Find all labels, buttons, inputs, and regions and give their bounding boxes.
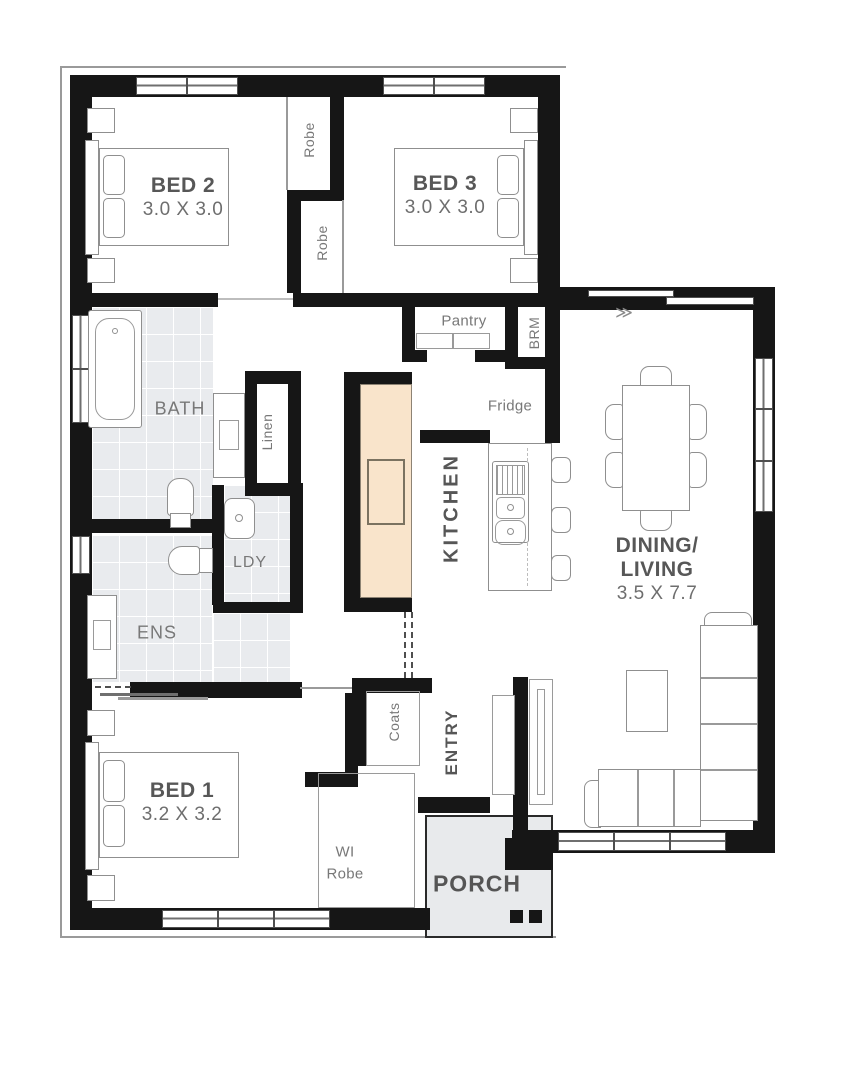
bath-toilet-bowl xyxy=(167,478,194,516)
island-stool-1 xyxy=(551,457,571,483)
robe-top-opening-line xyxy=(286,97,288,190)
bath-basin xyxy=(219,420,239,450)
wall-linen-right xyxy=(288,371,301,485)
bed3-label: BED 3 xyxy=(413,172,477,196)
entry-door-leaf xyxy=(492,695,515,795)
bed1-label: BED 1 xyxy=(150,779,214,803)
kitchen-cooktop xyxy=(367,459,405,525)
sofa-seat xyxy=(598,769,701,827)
wall-brm-left xyxy=(505,293,518,357)
window-bed1-mullion-1 xyxy=(217,910,219,928)
porch-post-1 xyxy=(510,910,523,923)
dining-chair-bottom xyxy=(640,509,672,531)
wall-shower-top xyxy=(213,602,293,613)
dining-chair-left-2 xyxy=(605,452,623,488)
coffee-table xyxy=(626,670,668,732)
ens-slider-panel-1 xyxy=(100,693,178,696)
kitchen-label: KITCHEN xyxy=(441,453,464,563)
window-bed3-mullion xyxy=(433,77,435,95)
window-ens xyxy=(72,536,90,574)
island-stool-3 xyxy=(551,555,571,581)
wall-entry-bottom xyxy=(418,797,490,813)
wall-bath-ens xyxy=(92,519,213,533)
bed2-side-table-top xyxy=(87,108,115,133)
dining-table xyxy=(622,385,690,511)
wall-fridge-right xyxy=(545,307,560,443)
wall-kitchen-stub xyxy=(420,430,490,443)
kitchen-sink-bowl-1-drain xyxy=(507,504,514,511)
window-bed1 xyxy=(162,910,330,928)
brm-label: BRM xyxy=(526,317,542,350)
bed3-side-table-top xyxy=(510,108,538,133)
coats-label: Coats xyxy=(386,702,402,741)
wall-bath-top-east xyxy=(293,293,358,307)
bed2-pillow-2 xyxy=(103,198,125,238)
ens-slider-dash xyxy=(95,686,131,688)
bathtub-drain xyxy=(112,328,118,334)
bed1-side-table-top xyxy=(87,710,115,736)
bath-toilet-base xyxy=(170,513,191,528)
bed1-pillow-2 xyxy=(103,805,125,847)
bed2-side-table-bottom xyxy=(87,258,115,283)
bed1-dims: 3.2 X 3.2 xyxy=(142,804,223,826)
bath-label: BATH xyxy=(155,399,206,420)
wall-bed2-bottom xyxy=(70,293,218,307)
floor-plan: ≫ xyxy=(0,0,855,1073)
wall-ldy-left xyxy=(212,485,224,605)
sofa-seat-cushion-line-1 xyxy=(637,770,639,826)
bed3-pillow-1 xyxy=(497,155,519,195)
bed2-pillow-1 xyxy=(103,155,125,195)
window-bed2-mullion xyxy=(186,77,188,95)
window-dining-right-mullion-2 xyxy=(755,460,773,462)
dining-label-line1: DINING/ xyxy=(616,534,699,558)
wi-robe-outline xyxy=(318,773,415,908)
wall-robe-left xyxy=(287,197,301,293)
sofa-chaise-cushion-line-2 xyxy=(701,723,757,725)
porch-post-2 xyxy=(529,910,542,923)
fridge-label: Fridge xyxy=(488,398,532,415)
hall-bed1-header-line xyxy=(300,687,352,689)
slide-direction-arrow-icon: ≫ xyxy=(615,303,633,323)
ens-basin xyxy=(93,620,111,650)
entry-label: ENTRY xyxy=(442,709,462,776)
dining-dims: 3.5 X 7.7 xyxy=(617,583,698,605)
dining-label-line2: LIVING xyxy=(620,558,693,582)
window-dining-right xyxy=(755,358,773,512)
wall-pantry-bottom-b xyxy=(475,350,505,362)
bed1-side-table-bottom xyxy=(87,875,115,901)
ldy-label: LDY xyxy=(233,554,267,572)
ens-toilet-tank xyxy=(199,548,213,573)
sliding-door-panel-2 xyxy=(666,297,754,305)
dining-chair-right-2 xyxy=(689,452,707,488)
pantry-shelf-divider xyxy=(452,333,454,349)
bed3-dims: 3.0 X 3.0 xyxy=(405,197,486,219)
bed3-headboard xyxy=(524,140,538,255)
sofa-chaise-cushion-line-1 xyxy=(701,677,757,679)
wall-bench-cap-top xyxy=(344,372,412,384)
bed2-dims: 3.0 X 3.0 xyxy=(143,199,224,221)
eaves-line-top xyxy=(60,66,566,68)
window-dining-right-mullion-1 xyxy=(755,408,773,410)
eaves-line-left xyxy=(60,66,62,938)
wall-linen-left xyxy=(245,371,257,496)
wall-bed1-right xyxy=(345,693,358,781)
kitchen-entry-dash-1 xyxy=(404,612,406,678)
wi-robe-label-line1: WI xyxy=(336,844,355,861)
kitchen-entry-dash-2 xyxy=(411,612,413,678)
window-living-mullion-2 xyxy=(669,832,671,851)
linen-label: Linen xyxy=(259,414,275,451)
bed3-pillow-2 xyxy=(497,198,519,238)
island-stool-2 xyxy=(551,507,571,533)
ens-label: ENS xyxy=(137,623,177,644)
shower-floor xyxy=(213,613,290,682)
window-living xyxy=(558,832,726,851)
wall-ldy-right xyxy=(290,483,303,613)
kitchen-sink-drainer xyxy=(496,465,525,495)
window-bed1-mullion-2 xyxy=(273,910,275,928)
robe-bottom-opening-line xyxy=(342,200,344,293)
wall-porch-corner xyxy=(505,838,553,870)
kitchen-sink-bowl-2-drain xyxy=(507,528,514,535)
wall-bed3-right xyxy=(538,75,560,307)
ldy-sink-drain xyxy=(235,514,243,522)
wall-kitchen-left xyxy=(344,384,360,598)
dining-chair-right-1 xyxy=(689,404,707,440)
sofa-chaise-cushion-line-3 xyxy=(701,769,757,771)
wi-robe-label-line2: Robe xyxy=(326,866,363,883)
ens-toilet-bowl xyxy=(168,546,200,575)
wall-pantry-bottom-a xyxy=(402,350,427,362)
robe-top-label: Robe xyxy=(301,122,317,157)
bed2-label: BED 2 xyxy=(151,174,215,198)
wall-bed3-bottom xyxy=(358,293,560,307)
sofa-seat-cushion-line-2 xyxy=(673,770,675,826)
porch-label: PORCH xyxy=(433,871,521,898)
bed1-headboard xyxy=(85,742,99,870)
pantry-label: Pantry xyxy=(441,313,486,330)
wall-bench-cap-bottom xyxy=(344,598,412,612)
wall-entry-dining xyxy=(513,677,528,835)
bed3-side-table-bottom xyxy=(510,258,538,283)
sliding-door-panel-1 xyxy=(588,290,674,297)
bath-door-opening-line xyxy=(218,298,293,300)
window-living-mullion-1 xyxy=(613,832,615,851)
bed2-headboard xyxy=(85,140,99,255)
robe-bottom-label: Robe xyxy=(314,225,330,260)
wall-robe-right xyxy=(330,97,344,197)
dining-chair-left-1 xyxy=(605,404,623,440)
entry-sidelight-glass xyxy=(537,689,545,795)
ens-slider-panel-2 xyxy=(118,697,208,700)
bed1-pillow-1 xyxy=(103,760,125,802)
